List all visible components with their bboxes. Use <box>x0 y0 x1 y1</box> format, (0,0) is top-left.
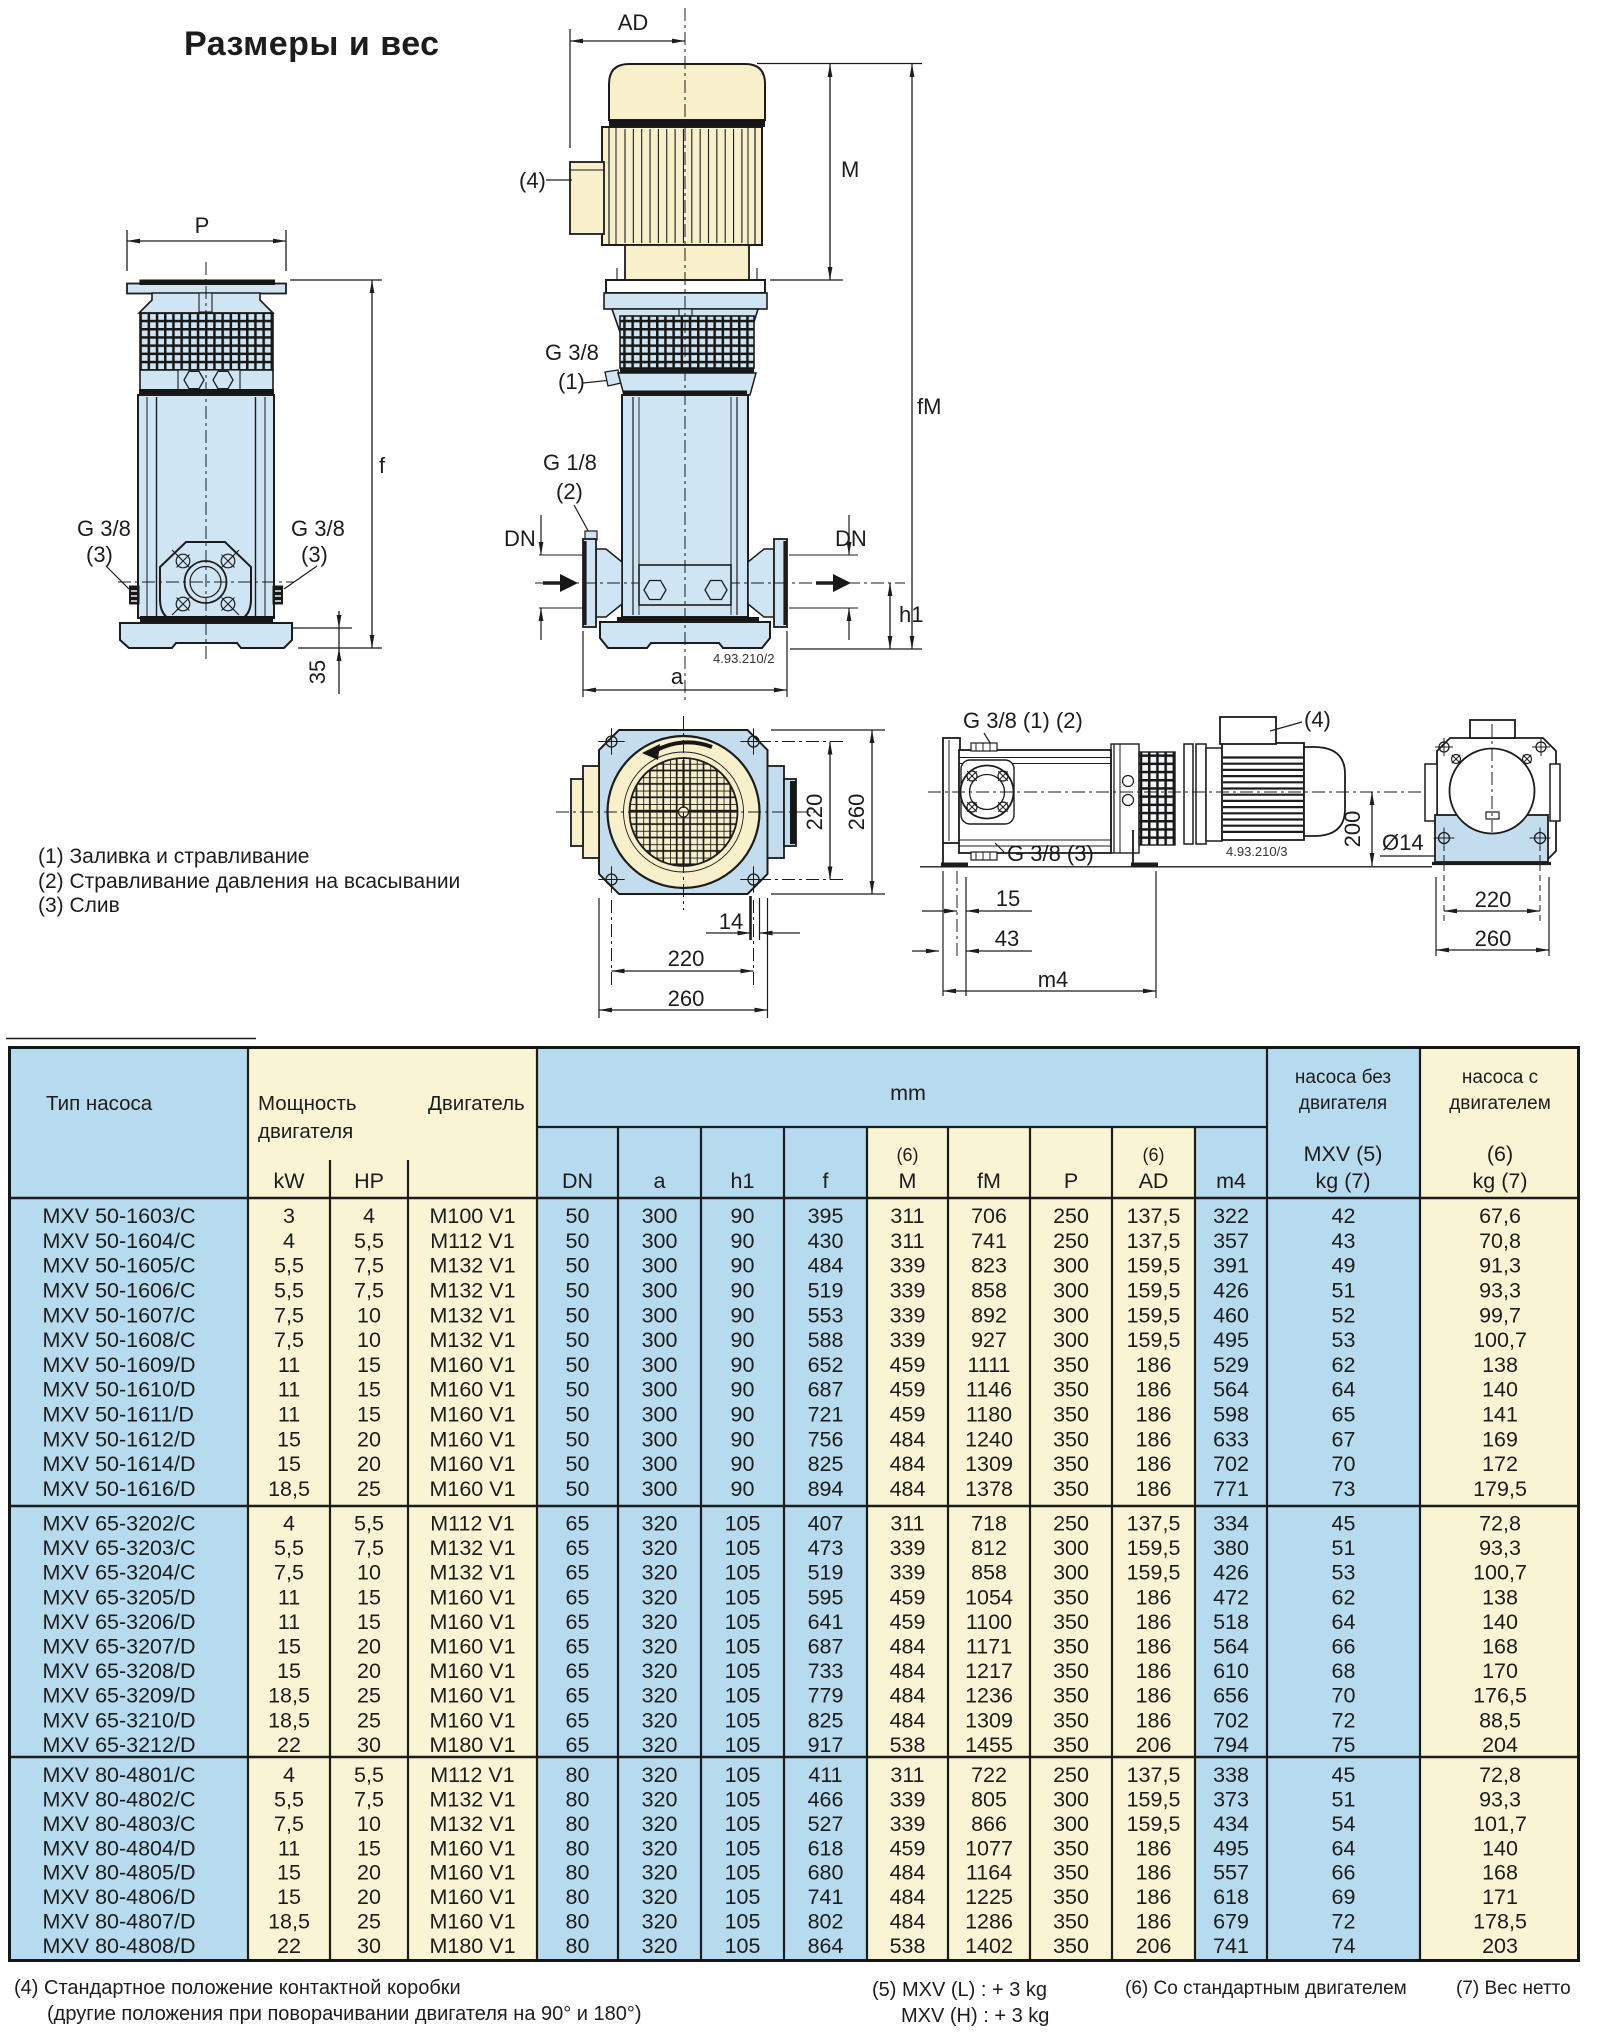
svg-text:Ø14: Ø14 <box>1382 830 1424 855</box>
svg-text:105: 105 <box>725 1684 761 1708</box>
svg-text:137,5: 137,5 <box>1127 1204 1181 1228</box>
svg-text:300: 300 <box>1053 1536 1089 1560</box>
svg-text:320: 320 <box>642 1885 678 1909</box>
svg-text:93,3: 93,3 <box>1479 1279 1521 1303</box>
svg-text:DN: DN <box>504 526 536 551</box>
svg-text:300: 300 <box>1053 1279 1089 1303</box>
svg-text:HP: HP <box>354 1169 384 1193</box>
svg-text:25: 25 <box>357 1708 381 1732</box>
svg-text:170: 170 <box>1482 1659 1518 1683</box>
svg-text:18,5: 18,5 <box>268 1910 310 1934</box>
svg-text:679: 679 <box>1213 1910 1249 1934</box>
svg-text:M160 V1: M160 V1 <box>429 1684 515 1708</box>
svg-text:178,5: 178,5 <box>1473 1910 1527 1934</box>
svg-text:(3): (3) <box>301 542 328 567</box>
svg-text:426: 426 <box>1213 1279 1249 1303</box>
svg-text:756: 756 <box>808 1427 844 1451</box>
svg-text:350: 350 <box>1053 1477 1089 1501</box>
svg-text:186: 186 <box>1136 1585 1172 1609</box>
svg-text:MXV 80-4805/D: MXV 80-4805/D <box>43 1861 196 1885</box>
svg-text:4: 4 <box>283 1229 295 1253</box>
svg-text:52: 52 <box>1332 1303 1356 1327</box>
svg-text:(6): (6) <box>1143 1145 1165 1165</box>
svg-text:426: 426 <box>1213 1561 1249 1585</box>
svg-text:250: 250 <box>1053 1204 1089 1228</box>
svg-text:15: 15 <box>357 1836 381 1860</box>
svg-text:4: 4 <box>283 1512 295 1536</box>
svg-text:50: 50 <box>566 1204 590 1228</box>
svg-text:1100: 1100 <box>966 1610 1012 1634</box>
svg-text:339: 339 <box>890 1561 926 1585</box>
svg-text:a: a <box>654 1169 666 1193</box>
svg-text:105: 105 <box>725 1733 761 1757</box>
svg-text:99,7: 99,7 <box>1479 1303 1521 1327</box>
svg-text:105: 105 <box>725 1536 761 1560</box>
svg-text:140: 140 <box>1482 1610 1518 1634</box>
svg-text:M180 V1: M180 V1 <box>429 1733 515 1757</box>
svg-text:395: 395 <box>808 1204 844 1228</box>
svg-text:15: 15 <box>277 1885 301 1909</box>
svg-text:M160 V1: M160 V1 <box>429 1403 515 1427</box>
svg-text:407: 407 <box>808 1512 844 1536</box>
svg-text:350: 350 <box>1053 1733 1089 1757</box>
svg-text:G 3/8 (1) (2): G 3/8 (1) (2) <box>963 708 1083 733</box>
svg-text:двигателя: двигателя <box>258 1120 353 1143</box>
svg-text:11: 11 <box>278 1403 300 1427</box>
svg-text:65: 65 <box>566 1561 590 1585</box>
svg-text:300: 300 <box>642 1204 678 1228</box>
svg-text:65: 65 <box>566 1610 590 1634</box>
svg-text:300: 300 <box>1053 1254 1089 1278</box>
svg-text:137,5: 137,5 <box>1127 1512 1181 1536</box>
svg-text:10: 10 <box>357 1328 381 1352</box>
svg-text:G 3/8: G 3/8 <box>291 516 345 541</box>
svg-text:105: 105 <box>725 1910 761 1934</box>
svg-text:518: 518 <box>1213 1610 1249 1634</box>
svg-text:90: 90 <box>731 1378 755 1402</box>
svg-text:1111: 1111 <box>967 1353 1010 1377</box>
svg-text:459: 459 <box>890 1610 926 1634</box>
svg-text:322: 322 <box>1213 1204 1249 1228</box>
svg-text:260: 260 <box>668 986 705 1011</box>
svg-text:300: 300 <box>642 1303 678 1327</box>
svg-text:P: P <box>195 213 210 238</box>
svg-text:M132 V1: M132 V1 <box>429 1328 515 1352</box>
svg-text:43: 43 <box>1332 1229 1356 1253</box>
svg-text:(3): (3) <box>86 542 113 567</box>
svg-text:(6): (6) <box>1487 1142 1513 1166</box>
svg-text:350: 350 <box>1053 1910 1089 1934</box>
svg-text:MXV 50-1607/C: MXV 50-1607/C <box>43 1303 196 1327</box>
svg-text:320: 320 <box>642 1763 678 1787</box>
svg-text:484: 484 <box>890 1635 926 1659</box>
svg-text:MXV 50-1606/C: MXV 50-1606/C <box>43 1279 196 1303</box>
svg-text:64: 64 <box>1332 1610 1356 1634</box>
svg-text:823: 823 <box>971 1254 1007 1278</box>
svg-text:186: 186 <box>1136 1635 1172 1659</box>
svg-text:484: 484 <box>890 1910 926 1934</box>
svg-text:320: 320 <box>642 1536 678 1560</box>
svg-text:473: 473 <box>808 1536 844 1560</box>
svg-text:M112 V1: M112 V1 <box>430 1763 514 1787</box>
svg-text:f: f <box>379 453 386 478</box>
svg-text:68: 68 <box>1332 1659 1356 1683</box>
svg-text:300: 300 <box>642 1279 678 1303</box>
svg-text:m4: m4 <box>1216 1169 1246 1193</box>
svg-text:5,5: 5,5 <box>354 1512 384 1536</box>
svg-text:M: M <box>899 1169 917 1193</box>
svg-text:15: 15 <box>996 886 1020 911</box>
svg-text:90: 90 <box>731 1452 755 1476</box>
svg-text:802: 802 <box>808 1910 844 1934</box>
svg-text:7,5: 7,5 <box>274 1303 304 1327</box>
svg-text:(4): (4) <box>1304 707 1331 732</box>
svg-text:892: 892 <box>971 1303 1007 1327</box>
svg-text:105: 105 <box>725 1659 761 1683</box>
svg-text:5,5: 5,5 <box>274 1254 304 1278</box>
svg-text:320: 320 <box>642 1585 678 1609</box>
svg-text:MXV 50-1614/D: MXV 50-1614/D <box>43 1452 196 1476</box>
svg-text:kW: kW <box>273 1169 305 1193</box>
svg-text:519: 519 <box>808 1561 844 1585</box>
svg-text:206: 206 <box>1136 1733 1172 1757</box>
svg-text:M180 V1: M180 V1 <box>429 1934 515 1958</box>
svg-text:64: 64 <box>1332 1378 1356 1402</box>
svg-text:350: 350 <box>1053 1934 1089 1958</box>
svg-text:1236: 1236 <box>965 1684 1013 1708</box>
svg-text:320: 320 <box>642 1812 678 1836</box>
svg-text:466: 466 <box>808 1787 844 1811</box>
svg-text:484: 484 <box>890 1885 926 1909</box>
svg-text:105: 105 <box>725 1561 761 1585</box>
svg-text:633: 633 <box>1213 1427 1249 1451</box>
svg-text:484: 484 <box>890 1427 926 1451</box>
svg-text:186: 186 <box>1136 1610 1172 1634</box>
svg-text:80: 80 <box>566 1812 590 1836</box>
svg-text:5,5: 5,5 <box>274 1279 304 1303</box>
svg-text:825: 825 <box>808 1708 844 1732</box>
svg-text:484: 484 <box>890 1708 926 1732</box>
svg-text:M160 V1: M160 V1 <box>429 1585 515 1609</box>
svg-text:50: 50 <box>566 1427 590 1451</box>
svg-text:595: 595 <box>808 1585 844 1609</box>
svg-text:484: 484 <box>890 1452 926 1476</box>
svg-text:M160 V1: M160 V1 <box>429 1836 515 1860</box>
svg-text:MXV 80-4803/C: MXV 80-4803/C <box>43 1812 196 1836</box>
svg-text:186: 186 <box>1136 1708 1172 1732</box>
svg-text:4.93.210/3: 4.93.210/3 <box>1226 844 1287 859</box>
svg-text:320: 320 <box>642 1836 678 1860</box>
svg-text:MXV 50-1604/C: MXV 50-1604/C <box>43 1229 196 1253</box>
svg-text:67,6: 67,6 <box>1479 1204 1521 1228</box>
svg-text:171: 171 <box>1482 1885 1518 1909</box>
svg-text:3: 3 <box>283 1204 295 1228</box>
svg-text:93,3: 93,3 <box>1479 1536 1521 1560</box>
svg-text:917: 917 <box>808 1733 844 1757</box>
svg-text:334: 334 <box>1213 1512 1249 1536</box>
svg-text:220: 220 <box>668 946 705 971</box>
svg-text:25: 25 <box>357 1684 381 1708</box>
svg-text:459: 459 <box>890 1378 926 1402</box>
svg-text:20: 20 <box>357 1659 381 1683</box>
svg-text:641: 641 <box>808 1610 844 1634</box>
svg-text:72,8: 72,8 <box>1479 1512 1521 1536</box>
svg-text:18,5: 18,5 <box>268 1477 310 1501</box>
svg-text:4: 4 <box>363 1204 375 1228</box>
svg-text:80: 80 <box>566 1910 590 1934</box>
svg-text:527: 527 <box>808 1812 844 1836</box>
svg-text:866: 866 <box>971 1812 1007 1836</box>
svg-text:656: 656 <box>1213 1684 1249 1708</box>
svg-text:484: 484 <box>890 1477 926 1501</box>
svg-text:MXV 65-3205/D: MXV 65-3205/D <box>43 1585 196 1609</box>
svg-text:825: 825 <box>808 1452 844 1476</box>
svg-text:MXV 80-4807/D: MXV 80-4807/D <box>43 1910 196 1934</box>
svg-text:339: 339 <box>890 1254 926 1278</box>
svg-text:350: 350 <box>1053 1610 1089 1634</box>
svg-text:338: 338 <box>1213 1763 1249 1787</box>
svg-text:MXV 50-1616/D: MXV 50-1616/D <box>43 1477 196 1501</box>
svg-text:311: 311 <box>890 1512 924 1536</box>
svg-text:G 3/8: G 3/8 <box>545 340 599 365</box>
svg-text:300: 300 <box>1053 1787 1089 1811</box>
svg-text:72: 72 <box>1332 1708 1356 1732</box>
svg-text:fM: fM <box>917 394 941 419</box>
svg-text:105: 105 <box>725 1708 761 1732</box>
svg-text:MXV 65-3206/D: MXV 65-3206/D <box>43 1610 196 1634</box>
svg-text:260: 260 <box>1475 926 1512 951</box>
svg-text:159,5: 159,5 <box>1127 1303 1181 1327</box>
svg-text:AD: AD <box>1139 1169 1169 1193</box>
svg-text:300: 300 <box>1053 1812 1089 1836</box>
svg-text:105: 105 <box>725 1885 761 1909</box>
svg-text:18,5: 18,5 <box>268 1708 310 1732</box>
svg-text:M160 V1: M160 V1 <box>429 1910 515 1934</box>
svg-text:459: 459 <box>890 1836 926 1860</box>
svg-text:687: 687 <box>808 1635 844 1659</box>
svg-text:65: 65 <box>1332 1403 1356 1427</box>
svg-text:15: 15 <box>277 1861 301 1885</box>
svg-text:186: 186 <box>1136 1684 1172 1708</box>
svg-text:M132 V1: M132 V1 <box>429 1279 515 1303</box>
svg-text:564: 564 <box>1213 1378 1249 1402</box>
svg-text:350: 350 <box>1053 1885 1089 1909</box>
svg-text:484: 484 <box>890 1684 926 1708</box>
svg-text:138: 138 <box>1482 1353 1518 1377</box>
svg-text:MXV 65-3207/D: MXV 65-3207/D <box>43 1635 196 1659</box>
svg-text:105: 105 <box>725 1635 761 1659</box>
svg-text:65: 65 <box>566 1684 590 1708</box>
svg-text:300: 300 <box>642 1229 678 1253</box>
svg-text:176,5: 176,5 <box>1473 1684 1527 1708</box>
svg-text:65: 65 <box>566 1659 590 1683</box>
svg-text:320: 320 <box>642 1934 678 1958</box>
svg-text:15: 15 <box>357 1353 381 1377</box>
svg-text:794: 794 <box>1213 1733 1249 1757</box>
svg-text:350: 350 <box>1053 1585 1089 1609</box>
svg-text:101,7: 101,7 <box>1473 1812 1527 1836</box>
svg-text:320: 320 <box>642 1910 678 1934</box>
svg-text:M160 V1: M160 V1 <box>429 1885 515 1909</box>
svg-text:168: 168 <box>1482 1861 1518 1885</box>
svg-text:557: 557 <box>1213 1861 1249 1885</box>
svg-text:43: 43 <box>995 926 1019 951</box>
svg-text:350: 350 <box>1053 1708 1089 1732</box>
svg-text:350: 350 <box>1053 1836 1089 1860</box>
svg-text:MXV 65-3202/C: MXV 65-3202/C <box>43 1512 196 1536</box>
svg-text:652: 652 <box>808 1353 844 1377</box>
svg-text:Двигатель: Двигатель <box>428 1092 525 1115</box>
svg-text:460: 460 <box>1213 1303 1249 1327</box>
svg-text:320: 320 <box>642 1659 678 1683</box>
svg-text:250: 250 <box>1053 1512 1089 1536</box>
svg-text:538: 538 <box>890 1934 926 1958</box>
svg-text:300: 300 <box>642 1378 678 1402</box>
svg-text:h1: h1 <box>731 1169 755 1193</box>
svg-text:14: 14 <box>719 909 743 934</box>
svg-text:564: 564 <box>1213 1635 1249 1659</box>
svg-text:51: 51 <box>1332 1787 1356 1811</box>
svg-text:15: 15 <box>357 1585 381 1609</box>
svg-text:80: 80 <box>566 1934 590 1958</box>
svg-text:339: 339 <box>890 1279 926 1303</box>
svg-text:MXV 80-4801/C: MXV 80-4801/C <box>43 1763 196 1787</box>
svg-text:80: 80 <box>566 1861 590 1885</box>
svg-text:двигателем: двигателем <box>1449 1093 1551 1114</box>
svg-text:159,5: 159,5 <box>1127 1812 1181 1836</box>
svg-text:(1): (1) <box>558 369 585 394</box>
svg-text:137,5: 137,5 <box>1127 1763 1181 1787</box>
svg-text:51: 51 <box>1332 1279 1356 1303</box>
svg-text:80: 80 <box>566 1763 590 1787</box>
svg-text:70,8: 70,8 <box>1479 1229 1521 1253</box>
svg-text:1180: 1180 <box>966 1403 1012 1427</box>
svg-text:311: 311 <box>890 1763 924 1787</box>
svg-text:186: 186 <box>1136 1427 1172 1451</box>
svg-text:51: 51 <box>1332 1536 1356 1560</box>
svg-text:320: 320 <box>642 1684 678 1708</box>
svg-text:G 3/8: G 3/8 <box>77 516 131 541</box>
svg-text:300: 300 <box>642 1427 678 1451</box>
svg-text:70: 70 <box>1332 1452 1356 1476</box>
svg-text:MXV 50-1612/D: MXV 50-1612/D <box>43 1427 196 1451</box>
svg-text:70: 70 <box>1332 1684 1356 1708</box>
svg-text:11: 11 <box>278 1378 300 1402</box>
svg-text:1146: 1146 <box>966 1378 1012 1402</box>
svg-text:779: 779 <box>808 1684 844 1708</box>
svg-text:a: a <box>671 664 684 689</box>
svg-text:771: 771 <box>1213 1477 1249 1501</box>
svg-text:m4: m4 <box>1038 967 1069 992</box>
svg-text:141: 141 <box>1482 1403 1518 1427</box>
svg-text:733: 733 <box>808 1659 844 1683</box>
svg-text:MXV 65-3210/D: MXV 65-3210/D <box>43 1708 196 1732</box>
svg-text:140: 140 <box>1482 1836 1518 1860</box>
svg-text:430: 430 <box>808 1229 844 1253</box>
svg-text:80: 80 <box>566 1787 590 1811</box>
svg-text:300: 300 <box>1053 1303 1089 1327</box>
svg-text:69: 69 <box>1332 1885 1356 1909</box>
svg-text:64: 64 <box>1332 1836 1356 1860</box>
svg-text:M160 V1: M160 V1 <box>429 1353 515 1377</box>
svg-text:10: 10 <box>357 1303 381 1327</box>
svg-text:M160 V1: M160 V1 <box>429 1610 515 1634</box>
svg-text:50: 50 <box>566 1254 590 1278</box>
svg-text:339: 339 <box>890 1328 926 1352</box>
svg-text:1077: 1077 <box>965 1836 1013 1860</box>
svg-text:18,5: 18,5 <box>268 1684 310 1708</box>
svg-text:65: 65 <box>566 1512 590 1536</box>
svg-text:100,7: 100,7 <box>1473 1328 1527 1352</box>
svg-text:90: 90 <box>731 1279 755 1303</box>
svg-text:186: 186 <box>1136 1378 1172 1402</box>
svg-text:MXV 65-3208/D: MXV 65-3208/D <box>43 1659 196 1683</box>
svg-text:1217: 1217 <box>965 1659 1013 1683</box>
svg-text:50: 50 <box>566 1229 590 1253</box>
svg-text:15: 15 <box>357 1403 381 1427</box>
svg-text:50: 50 <box>566 1477 590 1501</box>
svg-text:186: 186 <box>1136 1885 1172 1909</box>
svg-text:350: 350 <box>1053 1659 1089 1683</box>
svg-text:80: 80 <box>566 1836 590 1860</box>
svg-text:65: 65 <box>566 1635 590 1659</box>
svg-text:495: 495 <box>1213 1328 1249 1352</box>
svg-text:1240: 1240 <box>965 1427 1013 1451</box>
svg-text:насоса с: насоса с <box>1462 1067 1538 1088</box>
svg-text:300: 300 <box>642 1452 678 1476</box>
svg-text:65: 65 <box>566 1536 590 1560</box>
svg-text:7,5: 7,5 <box>354 1536 384 1560</box>
svg-text:159,5: 159,5 <box>1127 1536 1181 1560</box>
svg-text:74: 74 <box>1332 1934 1356 1958</box>
svg-text:M132 V1: M132 V1 <box>429 1536 515 1560</box>
svg-text:62: 62 <box>1332 1353 1356 1377</box>
svg-text:204: 204 <box>1482 1733 1518 1757</box>
svg-text:718: 718 <box>971 1512 1007 1536</box>
svg-text:90: 90 <box>731 1254 755 1278</box>
svg-text:927: 927 <box>971 1328 1007 1352</box>
svg-text:105: 105 <box>725 1934 761 1958</box>
svg-text:320: 320 <box>642 1733 678 1757</box>
svg-text:538: 538 <box>890 1733 926 1757</box>
svg-text:(4): (4) <box>519 168 546 193</box>
svg-text:373: 373 <box>1213 1787 1249 1811</box>
svg-text:588: 588 <box>808 1328 844 1352</box>
svg-text:186: 186 <box>1136 1861 1172 1885</box>
svg-text:300: 300 <box>642 1254 678 1278</box>
svg-text:380: 380 <box>1213 1536 1249 1560</box>
svg-text:311: 311 <box>890 1229 924 1253</box>
svg-text:M132 V1: M132 V1 <box>429 1561 515 1585</box>
svg-text:MXV (5): MXV (5) <box>1304 1142 1383 1166</box>
svg-text:1164: 1164 <box>966 1861 1012 1885</box>
svg-text:M160 V1: M160 V1 <box>429 1635 515 1659</box>
svg-text:30: 30 <box>357 1733 381 1757</box>
svg-text:11: 11 <box>278 1610 300 1634</box>
svg-text:105: 105 <box>725 1763 761 1787</box>
svg-text:300: 300 <box>642 1328 678 1352</box>
svg-text:300: 300 <box>642 1477 678 1501</box>
svg-text:M160 V1: M160 V1 <box>429 1708 515 1732</box>
svg-text:411: 411 <box>808 1763 842 1787</box>
svg-text:203: 203 <box>1482 1934 1518 1958</box>
svg-text:MXV 80-4806/D: MXV 80-4806/D <box>43 1885 196 1909</box>
svg-text:MXV 50-1611/D: MXV 50-1611/D <box>43 1403 194 1427</box>
svg-text:172: 172 <box>1482 1452 1518 1476</box>
svg-text:75: 75 <box>1332 1733 1356 1757</box>
svg-text:MXV 50-1609/D: MXV 50-1609/D <box>43 1353 196 1377</box>
svg-text:7,5: 7,5 <box>274 1561 304 1585</box>
